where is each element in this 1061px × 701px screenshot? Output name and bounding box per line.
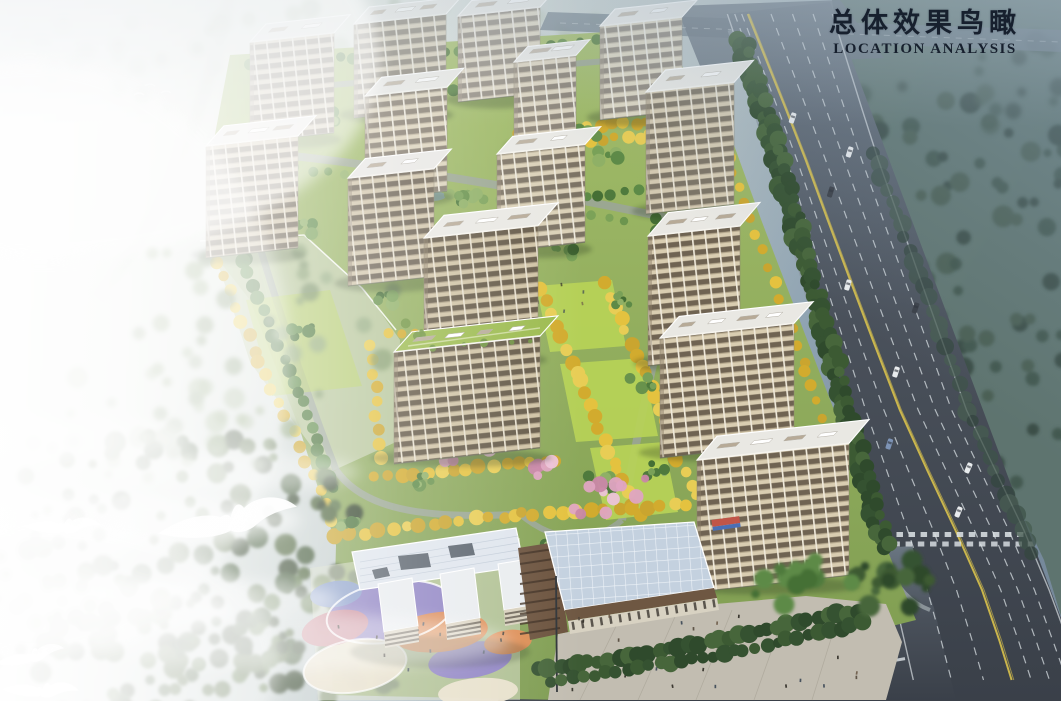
page-subtitle: LOCATION ANALYSIS xyxy=(829,41,1021,58)
aerial-render xyxy=(0,0,1061,701)
title-block: 总体效果鸟瞰 LOCATION ANALYSIS xyxy=(829,8,1021,58)
aerial-render-canvas: 总体效果鸟瞰 LOCATION ANALYSIS xyxy=(0,0,1061,701)
page-title: 总体效果鸟瞰 xyxy=(829,8,1021,39)
